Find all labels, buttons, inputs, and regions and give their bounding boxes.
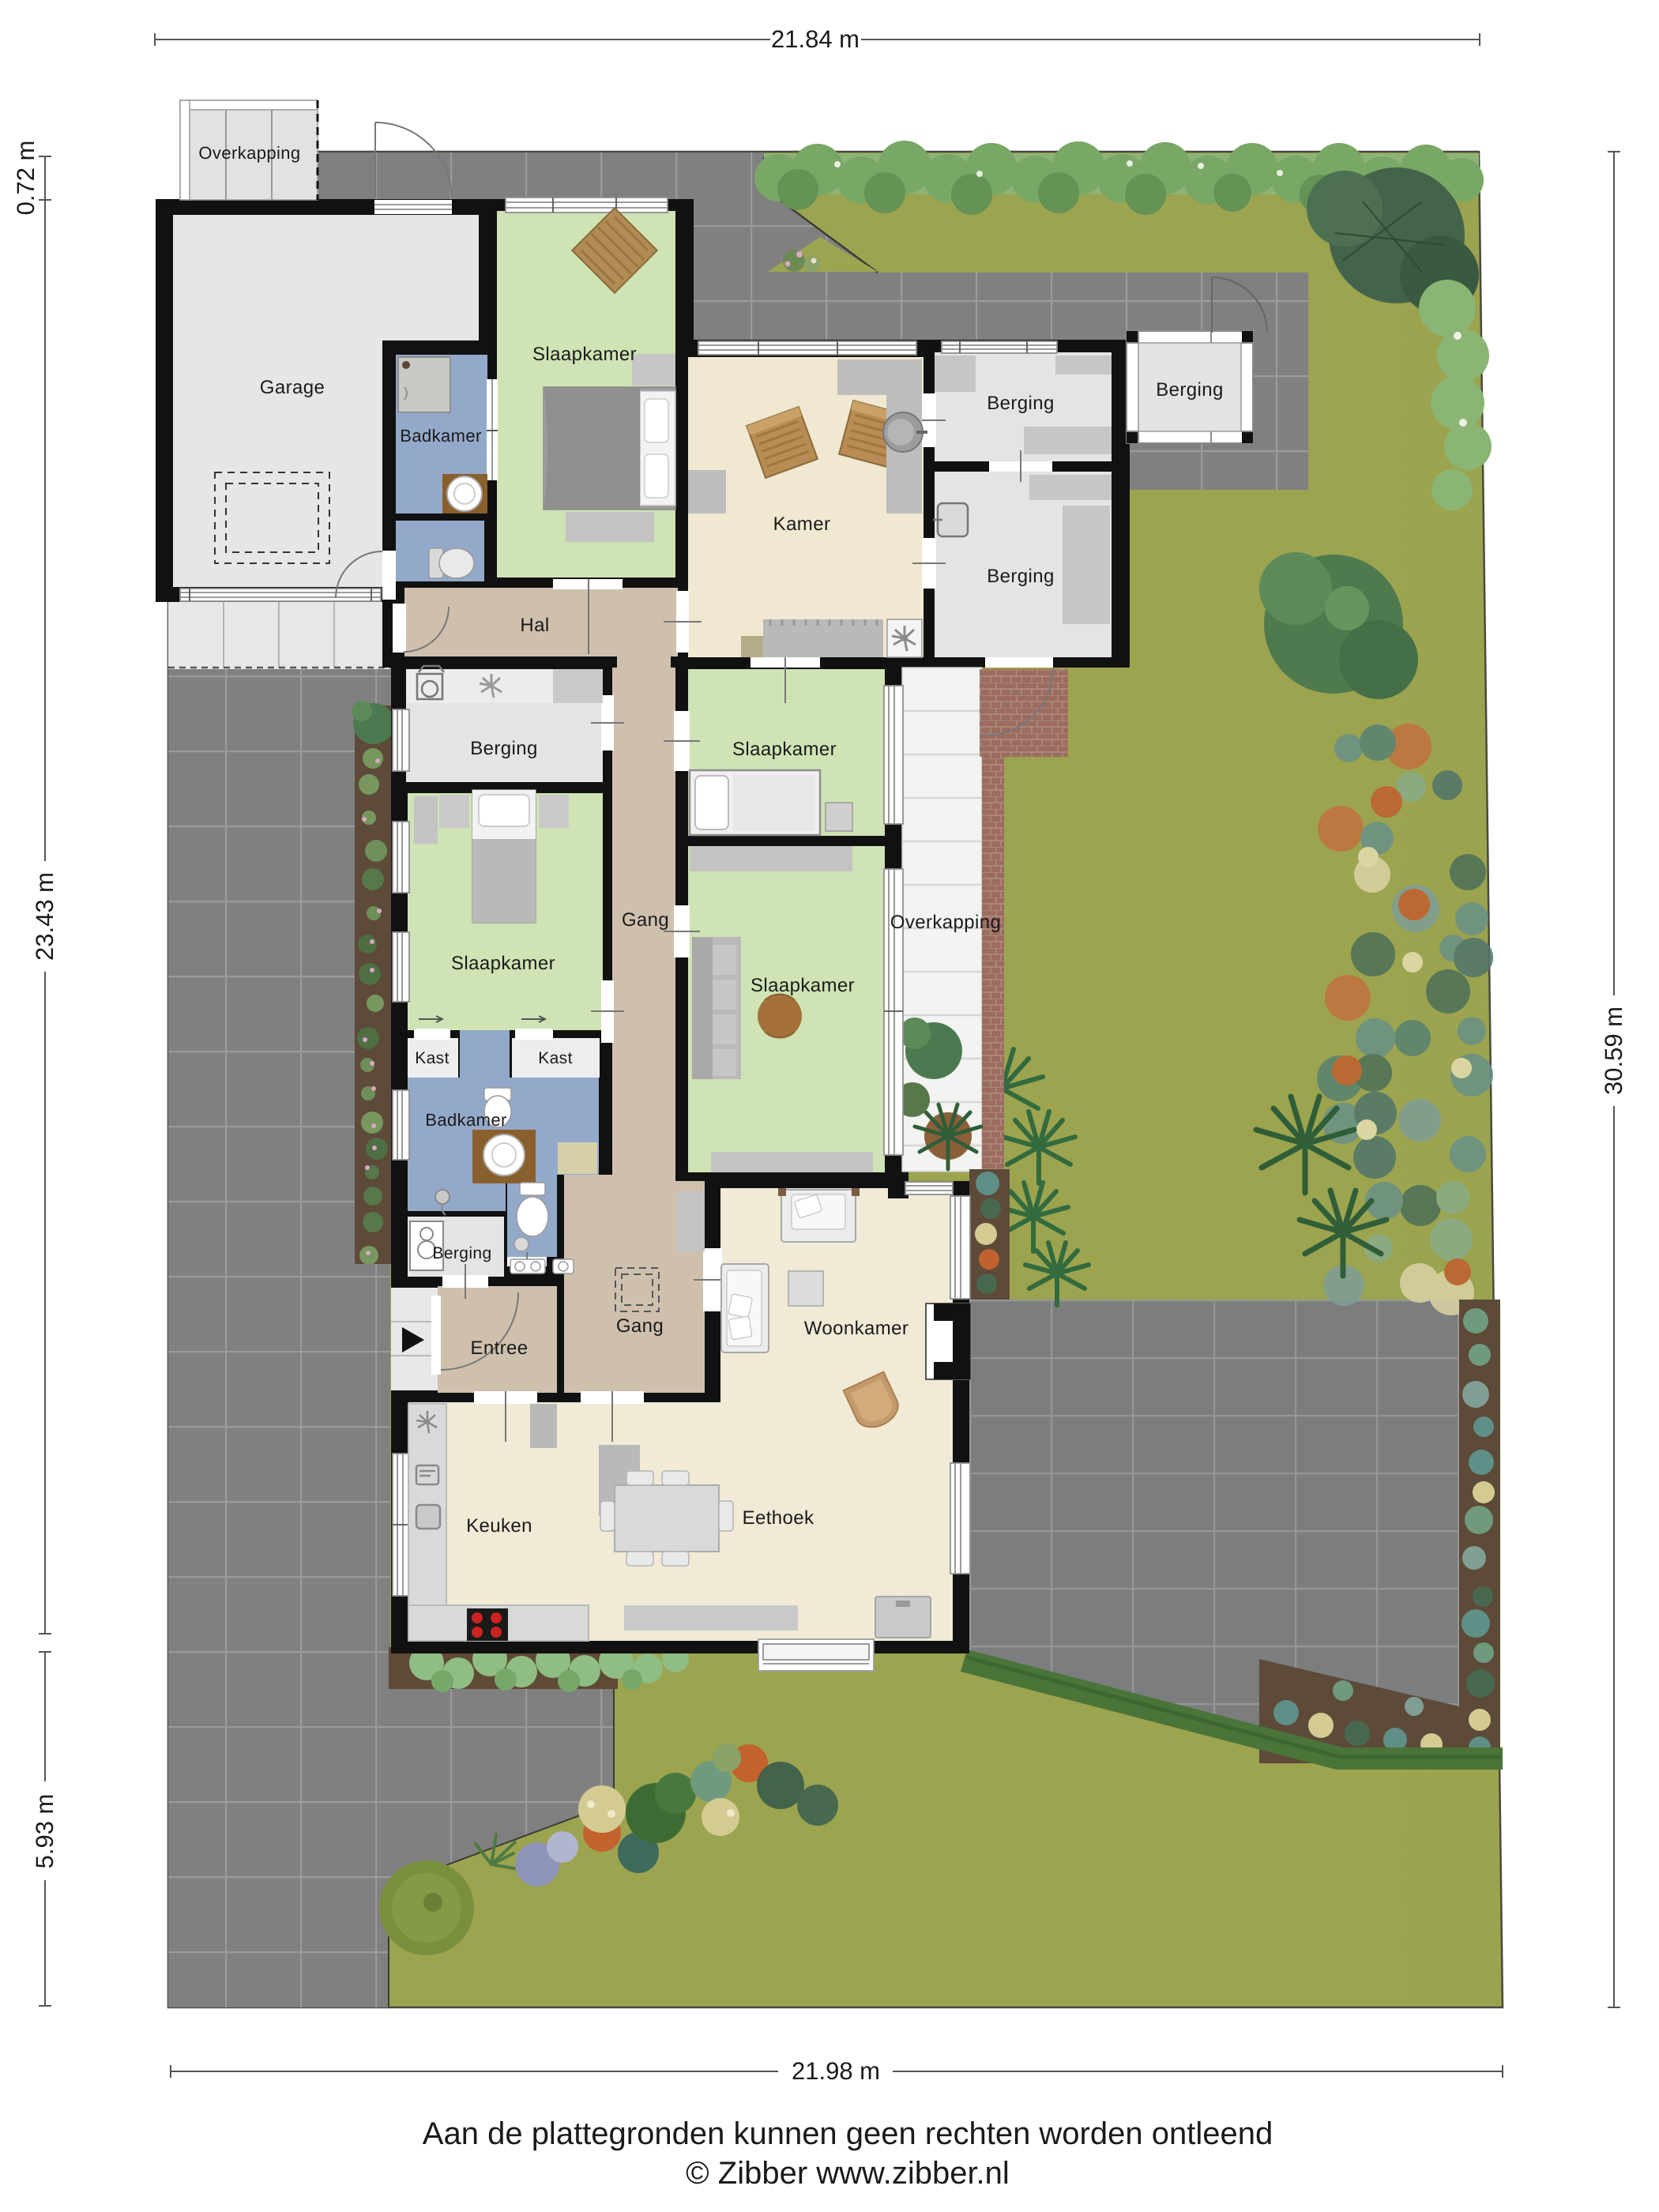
svg-text:0.72 m: 0.72 m bbox=[12, 141, 39, 216]
svg-text:Berging: Berging bbox=[987, 393, 1055, 414]
svg-text:Woonkamer: Woonkamer bbox=[804, 1318, 909, 1339]
svg-text:Overkapping: Overkapping bbox=[890, 912, 1001, 933]
svg-text:Entree: Entree bbox=[470, 1337, 528, 1359]
svg-text:30.59 m: 30.59 m bbox=[1600, 1006, 1627, 1095]
svg-text:Gang: Gang bbox=[616, 1315, 664, 1337]
svg-text:23.43 m: 23.43 m bbox=[31, 872, 58, 961]
svg-text:Gang: Gang bbox=[622, 909, 669, 931]
svg-text:Berging: Berging bbox=[432, 1244, 491, 1262]
svg-text:Slaapkamer: Slaapkamer bbox=[451, 953, 555, 974]
svg-text:Overkapping: Overkapping bbox=[198, 143, 300, 163]
svg-text:Garage: Garage bbox=[260, 377, 325, 398]
svg-text:Kast: Kast bbox=[538, 1049, 573, 1067]
svg-text:Badkamer: Badkamer bbox=[400, 426, 481, 446]
svg-text:21.98 m: 21.98 m bbox=[792, 2057, 880, 2085]
svg-text:Aan de plattegronden kunnen ge: Aan de plattegronden kunnen geen rechten… bbox=[423, 2116, 1273, 2151]
svg-text:5.93 m: 5.93 m bbox=[31, 1794, 58, 1869]
svg-text:Eethoek: Eethoek bbox=[743, 1507, 814, 1529]
svg-text:Slaapkamer: Slaapkamer bbox=[732, 739, 837, 760]
svg-text:Kast: Kast bbox=[415, 1049, 450, 1067]
svg-text:Berging: Berging bbox=[987, 566, 1055, 587]
svg-text:Keuken: Keuken bbox=[466, 1515, 532, 1537]
svg-text:Berging: Berging bbox=[1156, 379, 1224, 401]
svg-text:Slaapkamer: Slaapkamer bbox=[532, 344, 637, 365]
svg-text:Berging: Berging bbox=[470, 738, 538, 759]
svg-text:Hal: Hal bbox=[520, 615, 549, 636]
svg-text:Kamer: Kamer bbox=[773, 513, 831, 535]
svg-text:© Zibber www.zibber.nl: © Zibber www.zibber.nl bbox=[686, 2156, 1010, 2191]
svg-text:Slaapkamer: Slaapkamer bbox=[750, 975, 855, 996]
svg-text:21.84 m: 21.84 m bbox=[771, 25, 860, 53]
svg-text:Badkamer: Badkamer bbox=[425, 1110, 506, 1130]
